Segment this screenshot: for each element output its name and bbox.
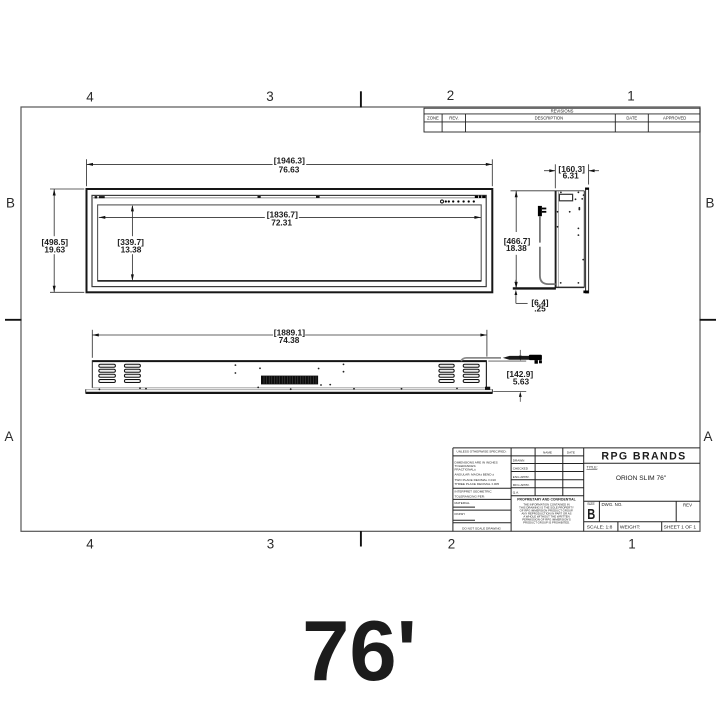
svg-text:RPG BRANDS: RPG BRANDS — [601, 450, 686, 462]
svg-text:ZONE: ZONE — [427, 115, 439, 120]
svg-text:.25: .25 — [534, 303, 546, 313]
svg-text:Q.A.: Q.A. — [513, 491, 519, 495]
svg-text:MATERIAL: MATERIAL — [455, 501, 471, 505]
svg-text:WEIGHT:: WEIGHT: — [620, 525, 640, 531]
svg-text:ANGULAR: MACH± BEND ±: ANGULAR: MACH± BEND ± — [455, 473, 495, 477]
svg-text:76': 76' — [302, 604, 417, 699]
svg-text:DRAWN: DRAWN — [513, 459, 525, 463]
svg-text:1: 1 — [627, 89, 634, 104]
svg-text:PROPRIETARY AND CONFIDENTIAL: PROPRIETARY AND CONFIDENTIAL — [517, 497, 575, 501]
svg-text:CHECKED: CHECKED — [513, 467, 529, 471]
svg-text:5.63: 5.63 — [513, 377, 530, 387]
svg-text:2: 2 — [448, 536, 455, 551]
svg-text:TITLE:: TITLE: — [587, 466, 598, 470]
svg-text:B: B — [6, 196, 15, 211]
svg-text:THREE PLACE DECIMAL ±.005: THREE PLACE DECIMAL ±.005 — [455, 482, 500, 486]
svg-text:4: 4 — [86, 90, 94, 105]
svg-text:FRACTIONAL±: FRACTIONAL± — [455, 467, 477, 471]
svg-text:TOLERANCING PER:: TOLERANCING PER: — [455, 494, 486, 498]
svg-text:B: B — [587, 507, 595, 523]
svg-text:74.38: 74.38 — [279, 335, 300, 345]
svg-text:6.31: 6.31 — [563, 171, 580, 181]
svg-text:FINISH: FINISH — [455, 512, 465, 516]
svg-text:19.63: 19.63 — [44, 245, 65, 255]
svg-text:B: B — [706, 196, 715, 211]
svg-text:18.38: 18.38 — [506, 243, 527, 253]
svg-text:DATE: DATE — [567, 451, 575, 455]
svg-text:SIZE: SIZE — [587, 502, 595, 506]
svg-text:DATE: DATE — [626, 115, 637, 120]
svg-text:ENG APPR.: ENG APPR. — [513, 475, 530, 479]
svg-text:UNLESS OTHERWISE SPECIFIED:: UNLESS OTHERWISE SPECIFIED: — [457, 450, 507, 454]
svg-text:72.31: 72.31 — [271, 217, 292, 227]
svg-text:1: 1 — [628, 536, 635, 551]
svg-text:APPROVED: APPROVED — [663, 115, 686, 120]
svg-text:PRODUCT GROUP IS PROHIBITED.: PRODUCT GROUP IS PROHIBITED. — [523, 521, 570, 525]
svg-text:MFG APPR.: MFG APPR. — [513, 483, 530, 487]
svg-text:DO NOT SCALE DRAWING: DO NOT SCALE DRAWING — [462, 527, 501, 531]
svg-text:REVISIONS: REVISIONS — [551, 109, 574, 114]
svg-text:NAME: NAME — [543, 451, 552, 455]
svg-text:A: A — [5, 429, 14, 444]
svg-text:3: 3 — [266, 89, 273, 104]
svg-text:A: A — [704, 429, 713, 444]
svg-text:ORION SLIM 76": ORION SLIM 76" — [616, 475, 667, 482]
svg-text:76.63: 76.63 — [279, 164, 300, 174]
svg-text:DESCRIPTION: DESCRIPTION — [535, 115, 564, 120]
svg-text:REV: REV — [683, 502, 692, 507]
svg-text:INTERPRET GEOMETRIC: INTERPRET GEOMETRIC — [455, 490, 493, 494]
svg-text:2: 2 — [447, 88, 454, 103]
svg-text:SHEET 1 OF 1: SHEET 1 OF 1 — [664, 525, 697, 531]
svg-text:SCALE: 1:8: SCALE: 1:8 — [587, 525, 613, 531]
svg-text:REV.: REV. — [449, 115, 458, 120]
svg-text:DWG. NO.: DWG. NO. — [602, 502, 623, 507]
svg-text:3: 3 — [267, 536, 274, 551]
svg-text:13.38: 13.38 — [121, 245, 142, 255]
svg-text:4: 4 — [86, 536, 94, 551]
